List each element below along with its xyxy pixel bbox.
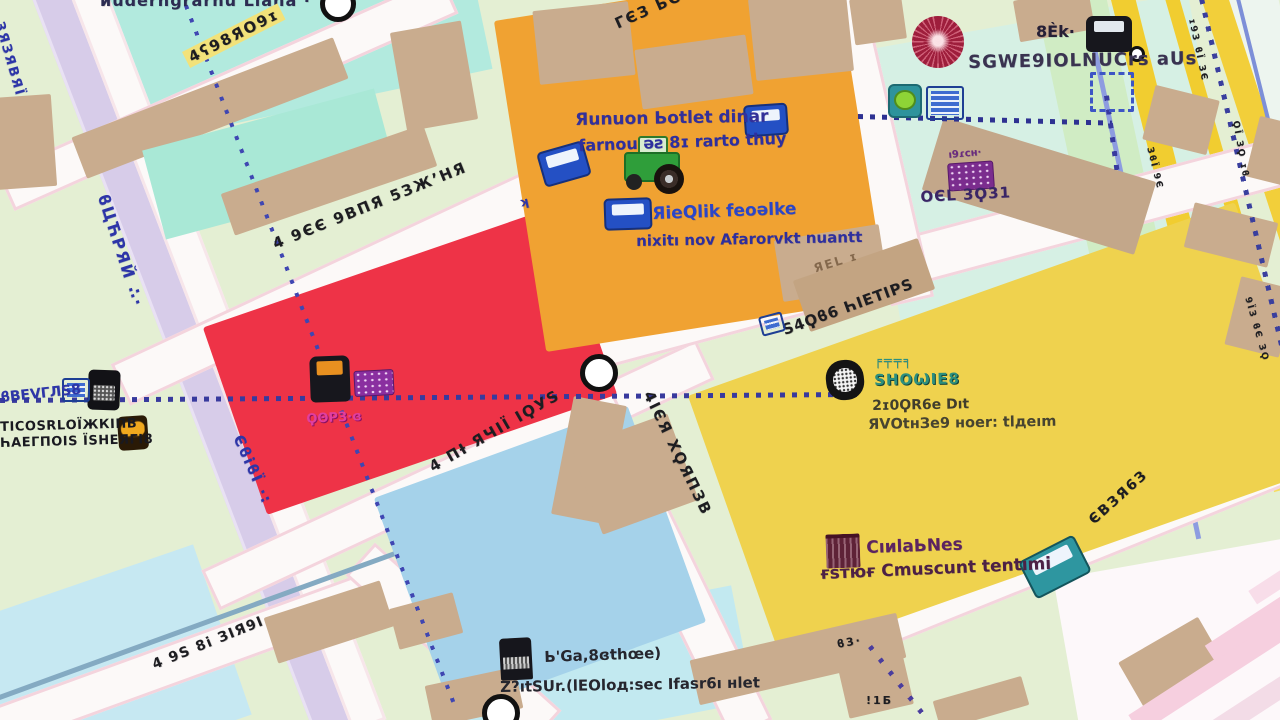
fireworks-icon[interactable] xyxy=(912,16,964,68)
poi-showies-sub2: ЯVОtнЗе9 ноеr: tlдеım xyxy=(868,414,1057,433)
map-canvas[interactable]: иuderngrarnu Liana · ЗЯЗЯВЯЇ ϐЦЋPЯЙ ∴· Є… xyxy=(0,0,1280,720)
station-ring-mid-icon[interactable] xyxy=(580,354,618,392)
kiosk-icon[interactable] xyxy=(499,637,533,681)
map-mark-tiny-bottom: !1Б xyxy=(866,694,893,707)
street-label-left-edge: ЗЯЗЯВЯЇ xyxy=(0,20,27,98)
dashed-bracket-icon[interactable] xyxy=(1090,72,1134,112)
building xyxy=(0,94,57,190)
tractor-wheel-small xyxy=(626,174,642,190)
locomotive-icon[interactable] xyxy=(1086,16,1132,52)
info-sign-icon[interactable] xyxy=(926,86,964,120)
poi-red-chip: ϘΘРЗ·ɞ xyxy=(306,409,362,427)
frog-sign-icon[interactable] xyxy=(888,84,922,118)
camera-icon[interactable] xyxy=(87,369,120,410)
tram-icon-red-block[interactable] xyxy=(309,355,351,402)
poi-showies-sub1: 2ɪ0ϘR6е Dıt xyxy=(872,396,969,414)
transit-badge-icon-red-block[interactable] xyxy=(353,369,394,397)
building xyxy=(849,0,907,45)
poi-88k: 8Ѐk· xyxy=(1036,22,1075,41)
poi-showies-fence: ╒╤╤╕ xyxy=(874,354,913,369)
poi-showies: SНОѠІЕ8 xyxy=(874,370,960,389)
map-mark-k: ʞ xyxy=(518,194,531,210)
building xyxy=(933,676,1030,720)
bus-icon-3[interactable] xyxy=(603,197,652,231)
poi-cinlabnes: CıиlаЬNеѕ xyxy=(866,535,963,558)
street-sign-icon-se[interactable] xyxy=(758,311,786,337)
poi-runuon-line1: Яunuon Ьotlet dinar xyxy=(575,107,769,130)
poi-sgwe: SGWЕ9ІOLNUСrs aUs xyxy=(968,48,1197,73)
building xyxy=(748,0,854,81)
tractor-wheel-big xyxy=(654,164,684,194)
